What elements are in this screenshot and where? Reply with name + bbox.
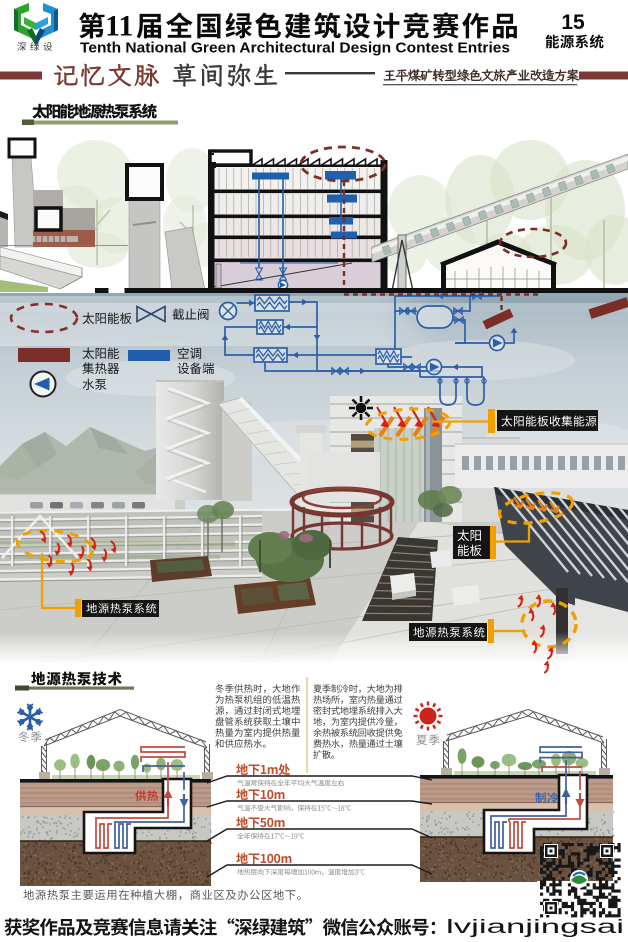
svg-text:Tenth National Green Architect: Tenth National Green Architectural Desig… [80,40,510,57]
svg-text:11: 11 [105,10,133,43]
svg-text:15: 15 [561,11,585,34]
svg-text:lvjianjingsai: lvjianjingsai [446,917,624,938]
